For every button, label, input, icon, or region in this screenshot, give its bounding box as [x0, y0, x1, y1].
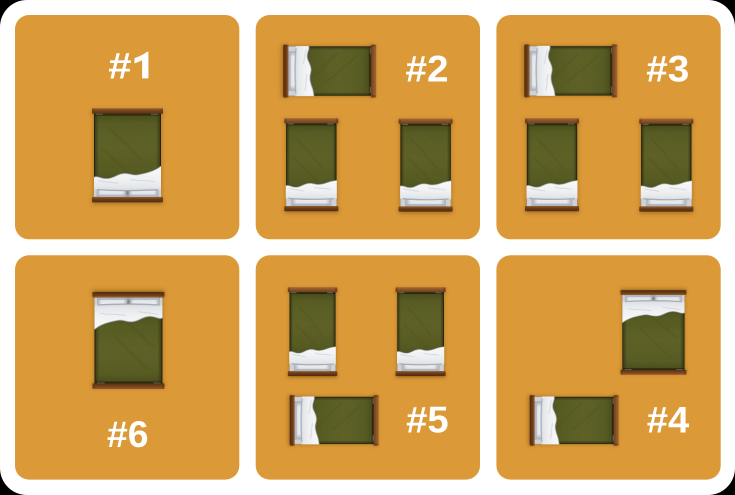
svg-text:#6: #6	[107, 414, 149, 455]
svg-text:#: #	[108, 45, 131, 86]
svg-text:#2: #2	[406, 48, 449, 89]
svg-text:#5: #5	[406, 399, 449, 440]
svg-text:#3: #3	[646, 48, 689, 89]
svg-text:#4: #4	[647, 399, 690, 440]
